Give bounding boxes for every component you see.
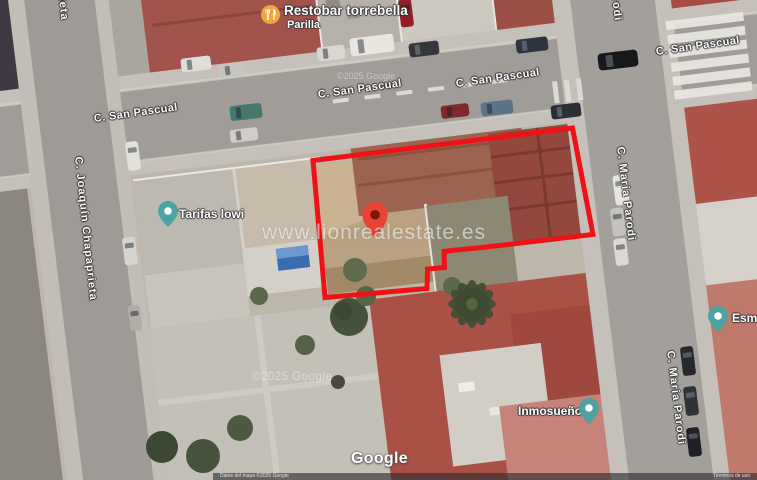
poi-pin-icon-tarifas[interactable] [158,201,178,227]
poi-pin-icon-esm[interactable] [708,306,728,332]
attribution-bar: Datos del mapa ©2025 Google Términos de … [213,473,757,480]
poi-label-esm-truncated[interactable]: Esm [732,311,757,325]
street-label-maria-parodi-partial: rodi [609,0,624,22]
watermark-text: www.lionrealestate.es [262,221,486,245]
copyright-text-top: ©2025 Google [337,71,395,81]
poi-label-restobar-subtitle[interactable]: Parilla [287,19,320,31]
poi-label-inmosueno[interactable]: Inmosueño [518,404,582,418]
pool [276,245,310,271]
poi-pin-icon-inmosueno[interactable] [579,398,599,424]
google-logo[interactable]: Google [351,450,408,468]
map-canvas[interactable]: Restobar torrebella Parilla C. San Pascu… [0,0,757,480]
copyright-text-center: ©2025 Google [252,371,332,383]
attribution-terms[interactable]: Términos de uso [713,473,750,480]
poi-label-tarifas[interactable]: Tarifas lowi [179,207,244,221]
attribution-map-data[interactable]: Datos del mapa ©2025 Google [220,473,289,480]
poi-label-restobar[interactable]: Restobar torrebella [284,3,408,18]
restaurant-icon[interactable] [261,5,280,24]
street-label-chapaprieta-partial: ieta [56,0,70,21]
